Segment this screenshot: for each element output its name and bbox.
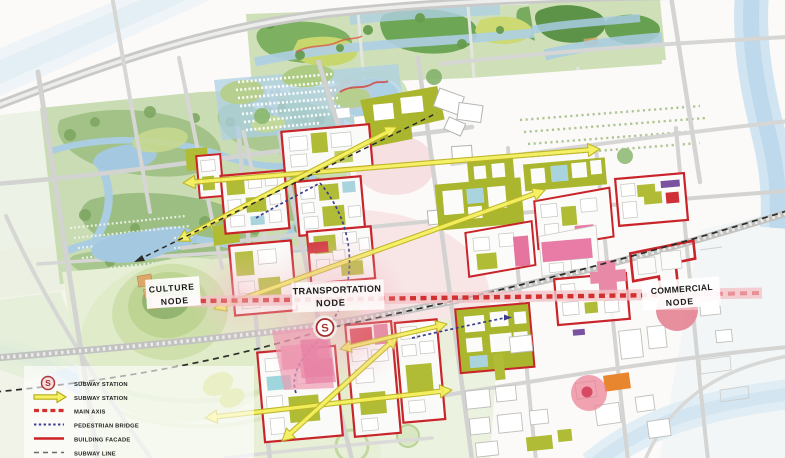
svg-text:PEDESTRIAN BRIDGE: PEDESTRIAN BRIDGE <box>74 424 139 430</box>
svg-text:SUBWAY STATION: SUBWAY STATION <box>74 396 128 402</box>
svg-text:SUBWAY STATION: SUBWAY STATION <box>74 382 128 388</box>
svg-text:S: S <box>45 378 51 388</box>
svg-text:NODE: NODE <box>160 295 189 307</box>
svg-text:SUBWAY LINE: SUBWAY LINE <box>74 452 116 458</box>
svg-text:NODE: NODE <box>665 296 694 308</box>
svg-text:MAIN AXIS: MAIN AXIS <box>74 410 106 416</box>
svg-text:BUILDING FACADE: BUILDING FACADE <box>74 438 130 444</box>
svg-text:NODE: NODE <box>316 297 346 308</box>
